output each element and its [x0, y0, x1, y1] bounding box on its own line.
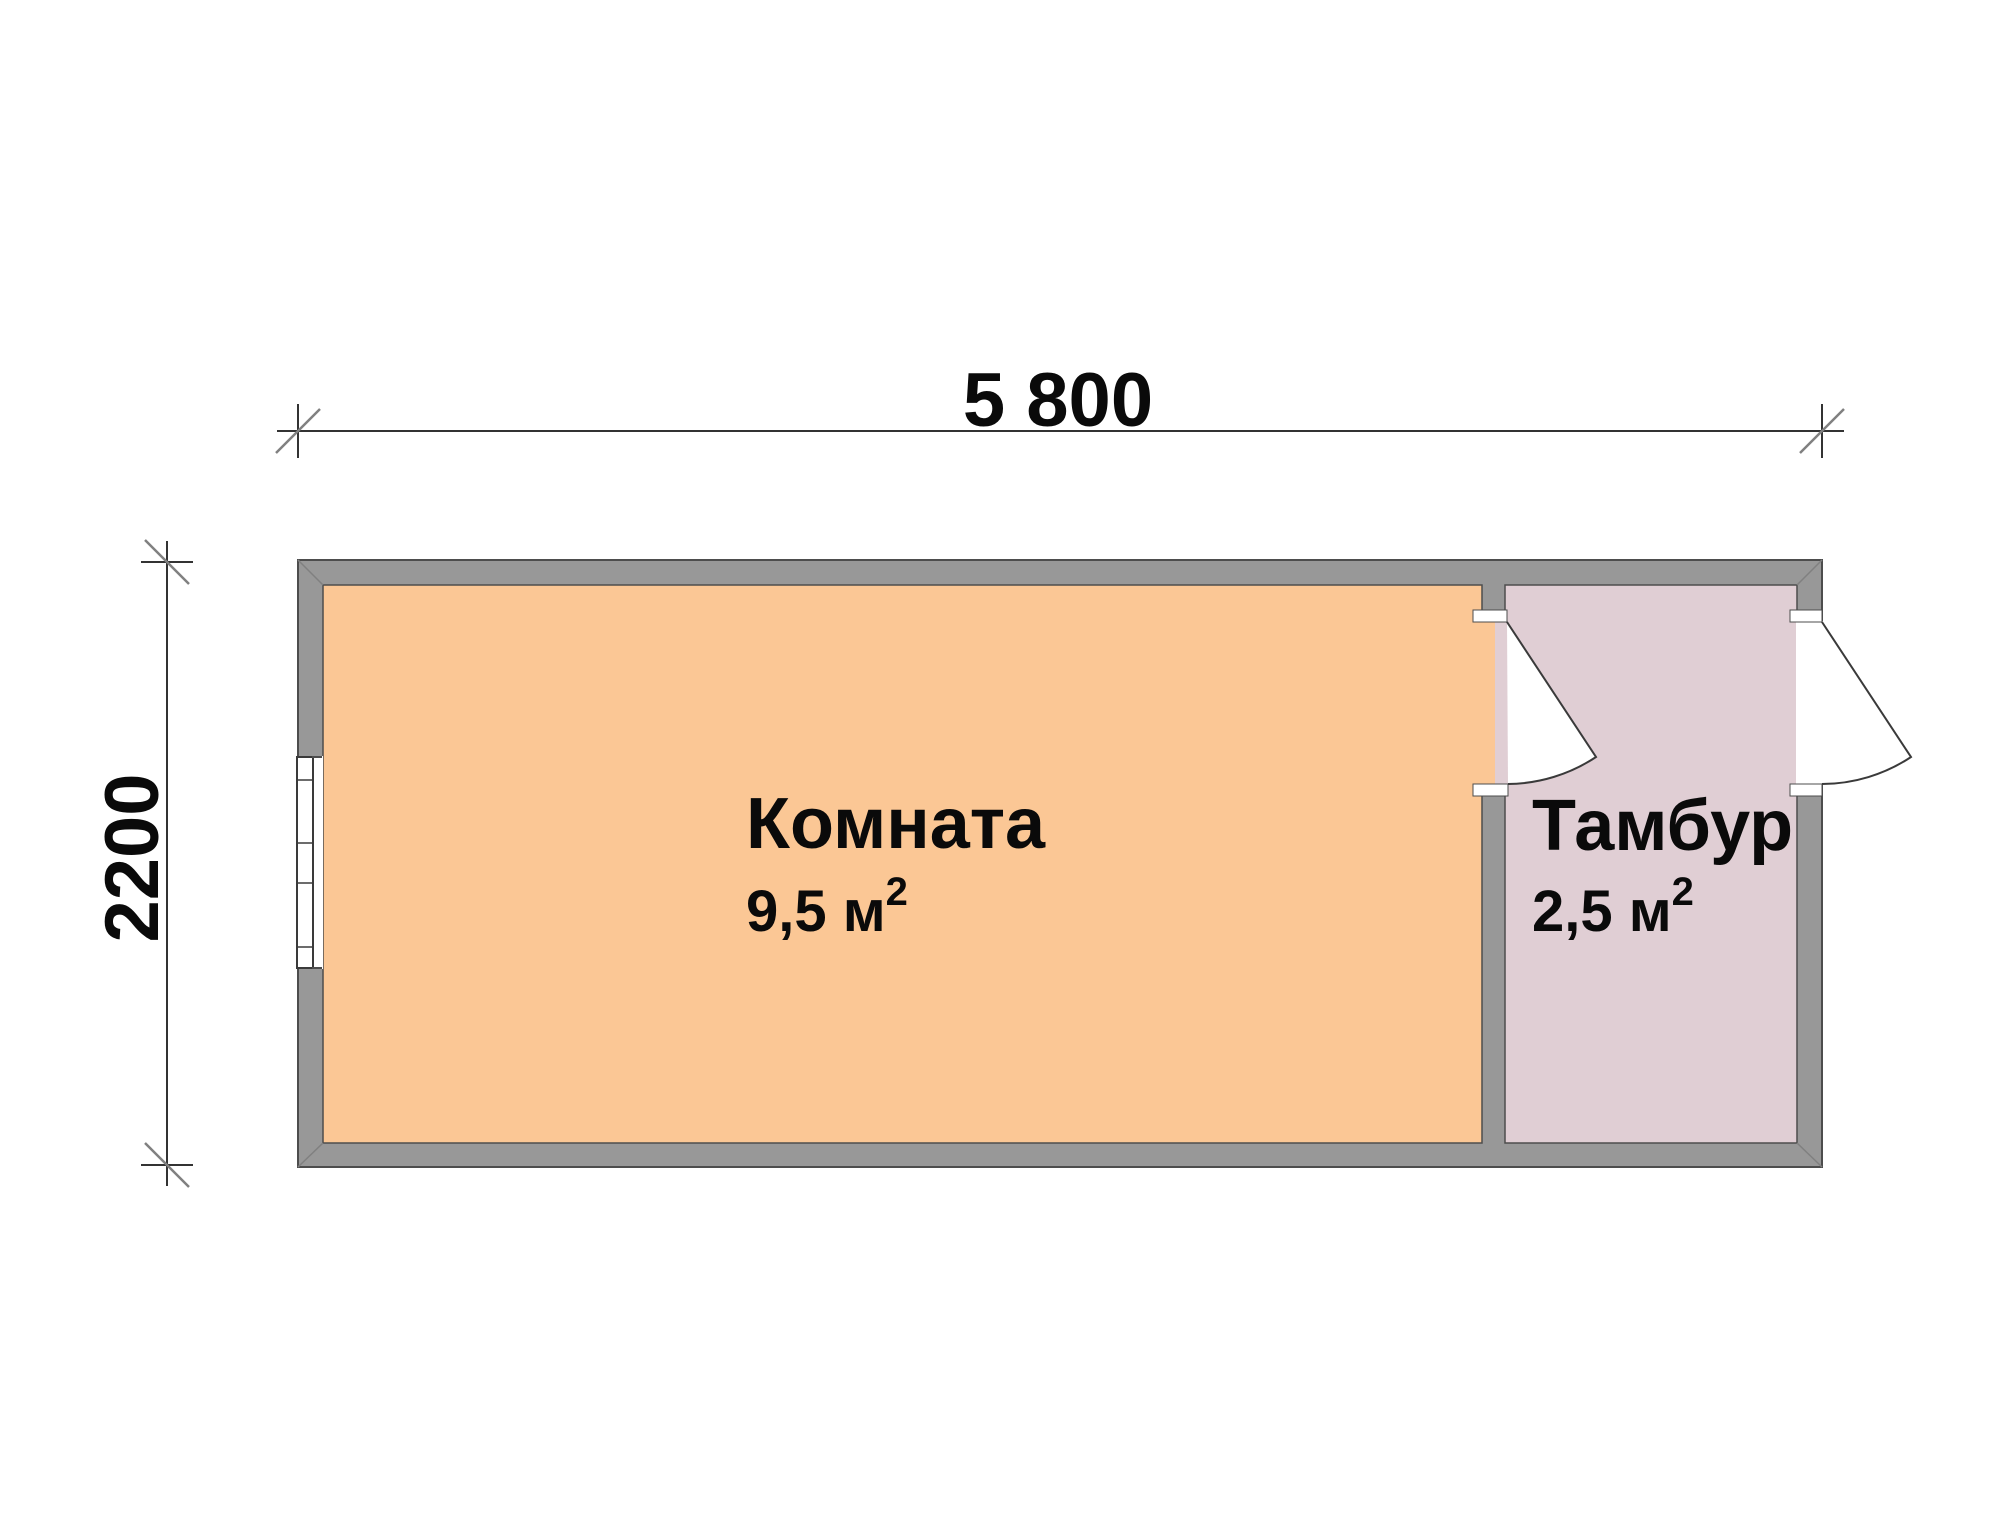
exterior-door-swing-area	[1822, 622, 1911, 784]
room-tambur-area-sup: 2	[1672, 870, 1694, 914]
partition-door-opening-tambur-side	[1495, 621, 1507, 784]
dimension-height-label: 2200	[90, 773, 175, 942]
partition-door-opening-komnata-side	[1480, 621, 1495, 784]
floor-plan: 5 800 2200 Комната 9,5 м2 Тамбур 2,5 м2	[0, 0, 2000, 1539]
room-komnata-name: Комната	[746, 784, 1046, 864]
interior-door-jamb-top	[1473, 610, 1507, 622]
exterior-door-jamb-bottom	[1790, 784, 1822, 796]
exterior-door-opening	[1796, 621, 1825, 784]
interior-door-jamb-bottom	[1473, 784, 1508, 796]
dimension-width: 5 800	[276, 358, 1844, 458]
room-tambur-name: Тамбур	[1532, 786, 1793, 866]
room-komnata-floor	[323, 585, 1482, 1143]
room-komnata-area-sup: 2	[886, 870, 908, 914]
dimension-height: 2200	[90, 540, 193, 1187]
window-opening	[295, 756, 323, 969]
dimension-width-label: 5 800	[963, 358, 1153, 443]
room-komnata-area: 9,5 м2	[746, 870, 908, 944]
room-tambur-area: 2,5 м2	[1532, 870, 1694, 944]
room-tambur-area-value: 2,5 м	[1532, 879, 1672, 944]
room-komnata-area-value: 9,5 м	[746, 879, 886, 944]
exterior-door-jamb-top	[1790, 610, 1822, 622]
